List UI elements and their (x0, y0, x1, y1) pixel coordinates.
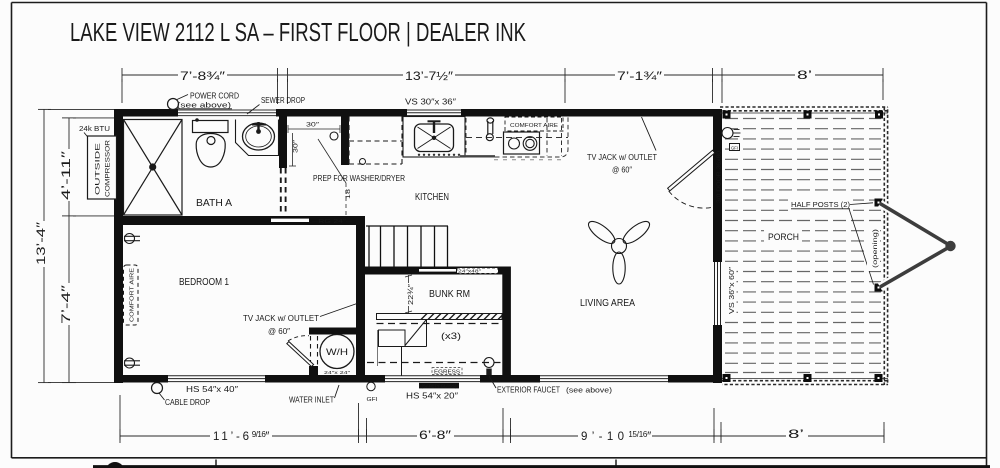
svg-text:6’-8″: 6’-8″ (419, 430, 451, 442)
svg-text:COMFORT AIRE: COMFORT AIRE (510, 123, 558, 129)
svg-text:PREP FOR WASHER/DRYER: PREP FOR WASHER/DRYER (313, 174, 405, 183)
svg-text:VS 30″x 36″: VS 30″x 36″ (405, 98, 456, 107)
svg-text:EXTERIOR FAUCET: EXTERIOR FAUCET (497, 386, 560, 395)
svg-text:BEDROOM 1: BEDROOM 1 (179, 276, 229, 288)
svg-text:7’-1¾″: 7’-1¾″ (617, 71, 662, 83)
svg-text:WATER INLET: WATER INLET (289, 396, 334, 405)
svg-text:24″x 24″: 24″x 24″ (324, 370, 350, 376)
svg-text:COMPRESSOR: COMPRESSOR (105, 139, 112, 197)
svg-text:8’: 8’ (788, 429, 804, 441)
svg-text:(opening): (opening) (872, 229, 879, 268)
svg-text:─RG 24″─: ─RG 24″─ (310, 219, 352, 225)
svg-text:GFI: GFI (367, 397, 378, 403)
svg-text:30″: 30″ (306, 122, 320, 129)
svg-text:8’: 8’ (797, 70, 812, 82)
svg-text:7’-4″: 7’-4″ (61, 285, 73, 324)
svg-text:30″: 30″ (293, 139, 300, 153)
svg-text:HS 54″x 40″: HS 54″x 40″ (186, 385, 238, 394)
svg-text:LIVING AREA: LIVING AREA (580, 298, 635, 309)
svg-text:LAKE VIEW 2112 L SA – FIRST FL: LAKE VIEW 2112 L SA – FIRST FLOOR | DEAL… (70, 17, 526, 47)
svg-text:4’-11″: 4’-11″ (61, 151, 73, 200)
svg-text:HS 54″x 20″: HS 54″x 20″ (406, 392, 458, 401)
svg-text:KITCHEN: KITCHEN (415, 192, 449, 203)
svg-text:18: 18 (346, 188, 352, 199)
svg-text:(x3): (x3) (441, 331, 461, 341)
svg-text:POWER CORD: POWER CORD (190, 92, 239, 101)
svg-text:OUTSIDE: OUTSIDE (95, 143, 102, 195)
svg-text:24″x48″: 24″x48″ (458, 269, 482, 274)
svg-text:24k BTU: 24k BTU (79, 126, 110, 133)
svg-text:@ 60″: @ 60″ (612, 165, 632, 175)
svg-text:EGRESS: EGRESS (434, 369, 461, 375)
svg-text:13’-7½″: 13’-7½″ (405, 71, 453, 83)
svg-text:(see above): (see above) (566, 386, 612, 395)
svg-text:CABLE DROP: CABLE DROP (165, 398, 210, 407)
svg-text:W/H: W/H (326, 347, 348, 358)
svg-text:BATH A: BATH A (196, 197, 232, 209)
svg-text:COMFORT AIRE: COMFORT AIRE (130, 267, 136, 322)
svg-text:22¾″: 22¾″ (406, 284, 415, 305)
svg-text:[SAFETY GLASS]: [SAFETY GLASS] (422, 383, 456, 388)
svg-text:GFI: GFI (731, 145, 738, 150)
svg-text:TV JACK w/ OUTLET: TV JACK w/ OUTLET (587, 152, 657, 162)
svg-text:3/0 DOOR 36x80: 3/0 DOOR 36x80 (716, 151, 722, 203)
svg-text:SEWER DROP: SEWER DROP (261, 96, 305, 105)
svg-text:PORCH: PORCH (768, 232, 799, 242)
svg-text:HALF POSTS (2): HALF POSTS (2) (791, 200, 851, 209)
svg-text:VS 36″x 60″: VS 36″x 60″ (727, 266, 736, 314)
svg-text:@ 60″: @ 60″ (268, 326, 290, 336)
svg-text:7’-8¾″: 7’-8¾″ (180, 71, 225, 83)
svg-text:BUNK RM: BUNK RM (429, 289, 470, 300)
svg-text:TV JACK w/ OUTLET: TV JACK w/ OUTLET (243, 313, 319, 323)
svg-text:13’-4″: 13’-4″ (36, 222, 48, 265)
